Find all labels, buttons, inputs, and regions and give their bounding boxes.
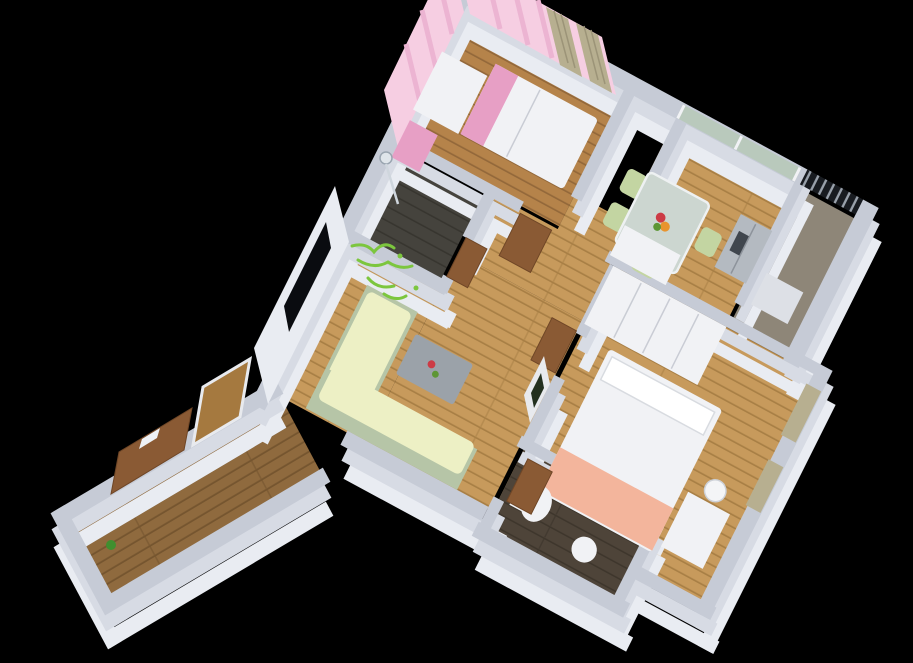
shower-head [380,152,392,164]
hall-plant [106,540,116,550]
floorplan-render [0,0,913,663]
floorplan-stage [0,0,913,663]
